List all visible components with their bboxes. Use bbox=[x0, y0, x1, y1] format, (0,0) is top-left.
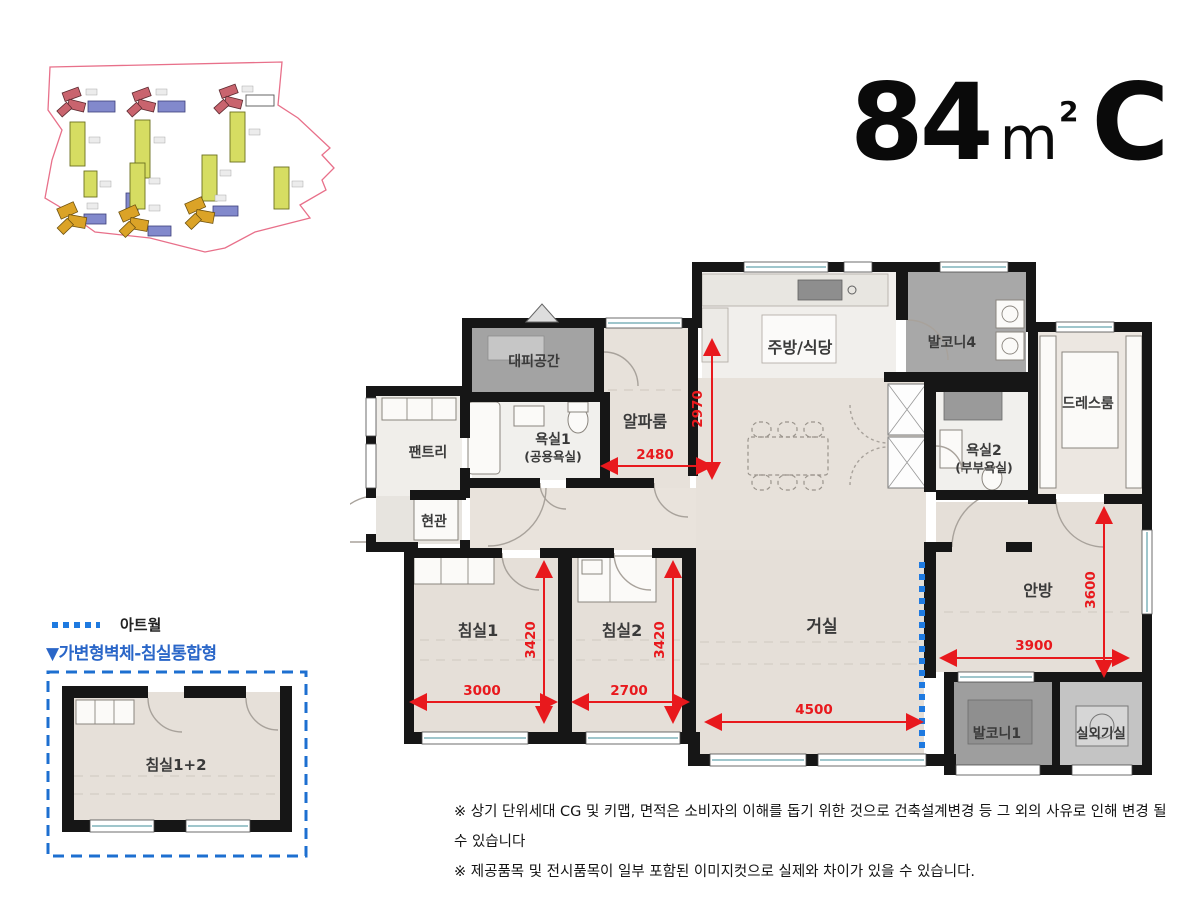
toilet1-tank bbox=[568, 402, 588, 412]
room-label-living: 거실 bbox=[806, 617, 837, 637]
title-unit: m2 bbox=[1000, 95, 1078, 174]
room-label-outdoor: 실외기실 bbox=[1076, 725, 1126, 742]
dim-bed1-width: 3000 bbox=[463, 683, 501, 699]
sink1-icon bbox=[514, 406, 544, 426]
title-area: 84 bbox=[850, 70, 990, 176]
room-label-pantry: 팬트리 bbox=[409, 445, 448, 461]
miniplan-wardrobe bbox=[76, 700, 134, 724]
dryer-icon bbox=[996, 332, 1024, 360]
refrigerator-icon bbox=[702, 308, 728, 362]
floorplan-page: 84 m2 C bbox=[0, 0, 1200, 900]
kitchen-sink-icon bbox=[798, 280, 842, 300]
dim-bed1-height: 3420 bbox=[523, 621, 539, 659]
room-label-bath2: 욕실2 bbox=[966, 443, 1002, 459]
title-type: C bbox=[1091, 70, 1165, 176]
room-label-master: 안방 bbox=[1023, 581, 1053, 600]
washer-icon bbox=[996, 300, 1024, 328]
wardrobe-bed1 bbox=[414, 556, 494, 584]
room-label-bath2-sub: (부부욕실) bbox=[955, 460, 1012, 475]
miniplan-room-label: 침실1+2 bbox=[145, 756, 206, 774]
room-label-bath1: 욕실1 bbox=[535, 432, 571, 448]
kitchen-counter bbox=[702, 274, 888, 306]
site-key-map bbox=[8, 45, 340, 267]
merged-bedroom-miniplan: 침실1+2 bbox=[46, 670, 308, 858]
dim-living-width: 4500 bbox=[795, 702, 833, 718]
bed2-pillow bbox=[582, 560, 602, 574]
dim-alpha-width: 2480 bbox=[636, 447, 674, 463]
evac-vent-icon bbox=[526, 304, 558, 322]
unit-type-title: 84 m2 C bbox=[850, 70, 1165, 176]
dress-wardrobe-right bbox=[1126, 336, 1142, 488]
disclaimer-line-1: ※ 상기 단위세대 CG 및 키맵, 면적은 소비자의 이해를 돕기 위한 것으… bbox=[454, 797, 1170, 857]
room-label-kitchen: 주방/식당 bbox=[768, 338, 833, 357]
room-label-alpha: 알파룸 bbox=[623, 412, 667, 431]
artwall-dotted-swatch bbox=[52, 622, 100, 628]
dress-wardrobe-left bbox=[1040, 336, 1056, 488]
disclaimer-notes: ※ 상기 단위세대 CG 및 키맵, 면적은 소비자의 이해를 돕기 위한 것으… bbox=[454, 797, 1170, 887]
room-label-bed2: 침실2 bbox=[602, 621, 643, 640]
room-label-balcony1: 발코니1 bbox=[973, 725, 1021, 742]
dim-bed2-height: 3420 bbox=[652, 621, 668, 659]
room-label-balcony4: 발코니4 bbox=[928, 334, 977, 351]
room-label-dress: 드레스룸 bbox=[1062, 396, 1114, 412]
room-label-entrance: 현관 bbox=[421, 513, 447, 530]
room-label-evac: 대피공간 bbox=[508, 353, 560, 370]
artwall-label: 아트월 bbox=[120, 614, 161, 635]
shower-icon bbox=[944, 388, 1002, 420]
site-building-outline bbox=[246, 95, 274, 106]
variant-wall-label: ▼가변형벽체-침실통합형 bbox=[46, 639, 217, 664]
disclaimer-line-2: ※ 제공품목 및 전시품목이 일부 포함된 이미지컷으로 실제와 차이가 있을 … bbox=[454, 857, 1170, 887]
dim-master-width: 3900 bbox=[1015, 638, 1053, 654]
room-label-bath1-sub: (공용욕실) bbox=[524, 449, 581, 464]
main-floorplan: 2970 2480 3420 3000 3420 2700 4500 3900 … bbox=[350, 248, 1170, 783]
title-unit-superscript: 2 bbox=[1059, 95, 1077, 128]
dim-master-height: 3600 bbox=[1083, 571, 1099, 609]
bathtub-icon bbox=[468, 402, 500, 474]
artwall-legend: 아트월 bbox=[52, 614, 161, 635]
pantry-shelf bbox=[382, 398, 456, 420]
dim-bed2-width: 2700 bbox=[610, 683, 648, 699]
dim-alpha-height: 2970 bbox=[690, 390, 706, 428]
room-label-bed1: 침실1 bbox=[458, 621, 499, 640]
